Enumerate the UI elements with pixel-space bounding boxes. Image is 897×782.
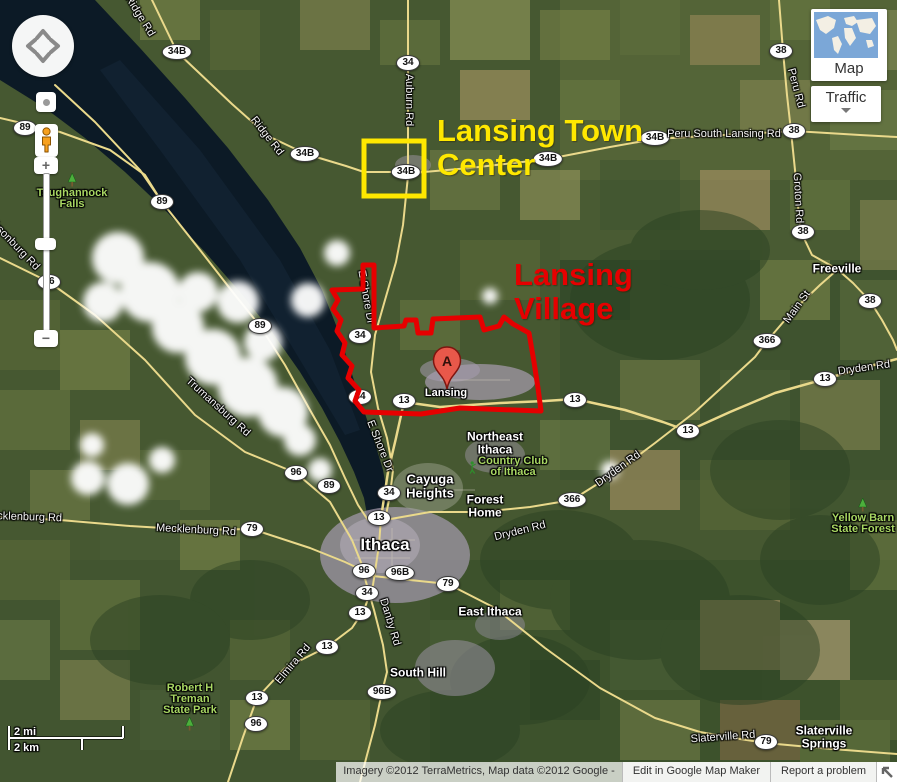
- pan-arrows: [12, 15, 74, 77]
- recenter-button[interactable]: [36, 92, 56, 112]
- pan-control[interactable]: [12, 15, 74, 77]
- map-viewport: 34B343834B34B34B34B388989388996343836634…: [0, 0, 897, 782]
- pan-down-icon: [37, 54, 49, 61]
- collapse-corner-button[interactable]: [876, 762, 897, 782]
- traffic-button-label: Traffic: [811, 86, 881, 106]
- town-center-line1: Lansing Town: [437, 114, 643, 148]
- map-view-button[interactable]: Map: [814, 58, 884, 81]
- town-center-line2: Center: [437, 148, 643, 182]
- zoom-slider-track[interactable]: [43, 173, 50, 333]
- town-center-annotation: Lansing Town Center: [437, 114, 643, 182]
- scale-miles-label: 2 mi: [14, 726, 36, 738]
- report-problem-button[interactable]: Report a problem: [770, 762, 876, 782]
- arrow-northwest-icon: [881, 766, 894, 779]
- chevron-down-icon: [841, 108, 851, 113]
- recenter-dot-icon: [43, 99, 50, 106]
- village-annotation: Lansing Village: [514, 258, 633, 326]
- pan-left-icon: [28, 40, 35, 52]
- marker-letter: A: [442, 353, 452, 369]
- pegman-icon: [39, 127, 54, 154]
- map-marker-a[interactable]: A: [432, 346, 462, 390]
- zoom-out-button[interactable]: −: [34, 330, 58, 347]
- village-line1: Lansing: [514, 258, 633, 292]
- world-overview-thumbnail: [814, 12, 878, 58]
- attribution-bar: Imagery ©2012 TerraMetrics, Map data ©20…: [336, 762, 897, 782]
- traffic-widget[interactable]: Traffic: [811, 86, 881, 122]
- copyright-text: Imagery ©2012 TerraMetrics, Map data ©20…: [336, 762, 622, 782]
- zoom-slider-handle[interactable]: [35, 238, 56, 250]
- pan-right-icon: [51, 40, 58, 52]
- pan-up-icon: [37, 31, 49, 38]
- edit-map-maker-button[interactable]: Edit in Google Map Maker: [622, 762, 770, 782]
- zoom-in-button[interactable]: +: [34, 157, 58, 174]
- scale-km-label: 2 km: [14, 742, 39, 754]
- map-type-widget[interactable]: Map: [811, 9, 887, 81]
- village-line2: Village: [514, 292, 633, 326]
- pegman-control[interactable]: [35, 124, 58, 157]
